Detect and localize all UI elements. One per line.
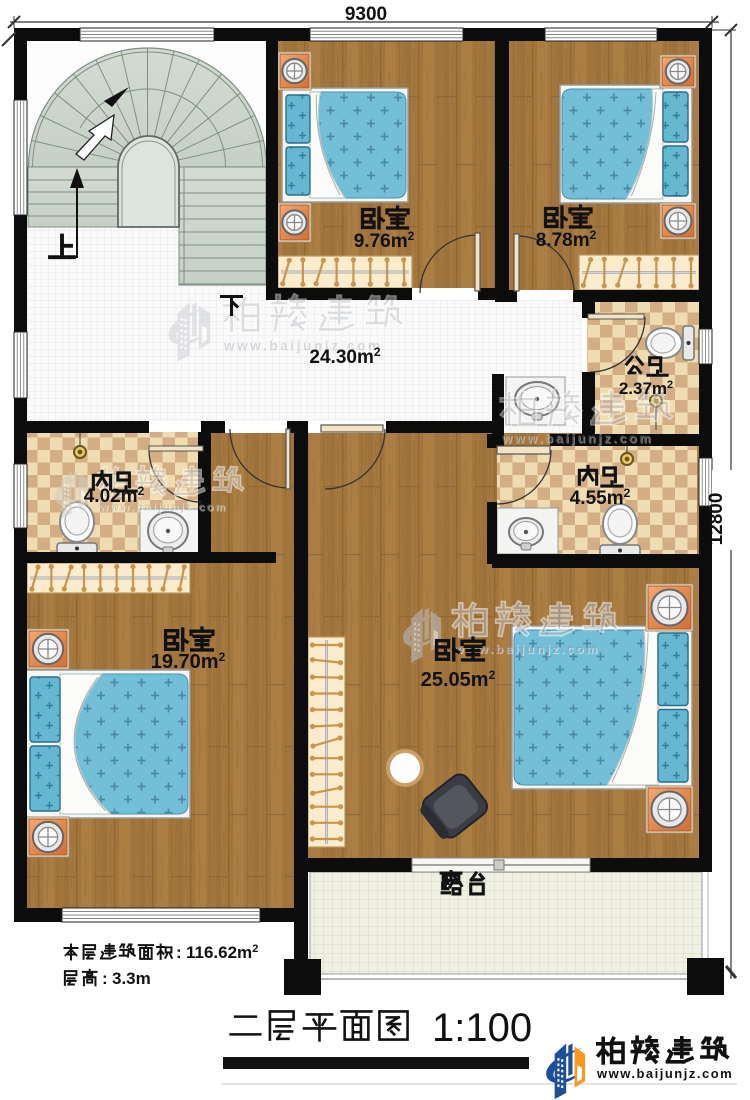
svg-text:19.70m2: 19.70m2 (151, 650, 226, 673)
svg-text:3.3m: 3.3m (112, 969, 151, 988)
svg-text:2.37m2: 2.37m2 (619, 379, 673, 398)
svg-text::: : (176, 943, 182, 962)
svg-text:4.02m2: 4.02m2 (84, 484, 145, 507)
svg-text:25.05m2: 25.05m2 (421, 668, 496, 691)
svg-text:1:100: 1:100 (432, 1006, 532, 1050)
svg-text::: : (102, 969, 108, 988)
svg-text:12800: 12800 (706, 493, 727, 546)
svg-text:116.62m2: 116.62m2 (186, 943, 258, 962)
svg-text:9.76m2: 9.76m2 (354, 229, 415, 252)
svg-text:9300: 9300 (345, 4, 387, 25)
svg-text:8.78m2: 8.78m2 (536, 228, 597, 251)
svg-text:24.30m2: 24.30m2 (309, 345, 380, 368)
svg-text:4.55m2: 4.55m2 (570, 486, 631, 509)
svg-text:www.baijunjz.com: www.baijunjz.com (596, 1066, 733, 1081)
svg-text:www.baijunjz.com: www.baijunjz.com (501, 431, 653, 446)
